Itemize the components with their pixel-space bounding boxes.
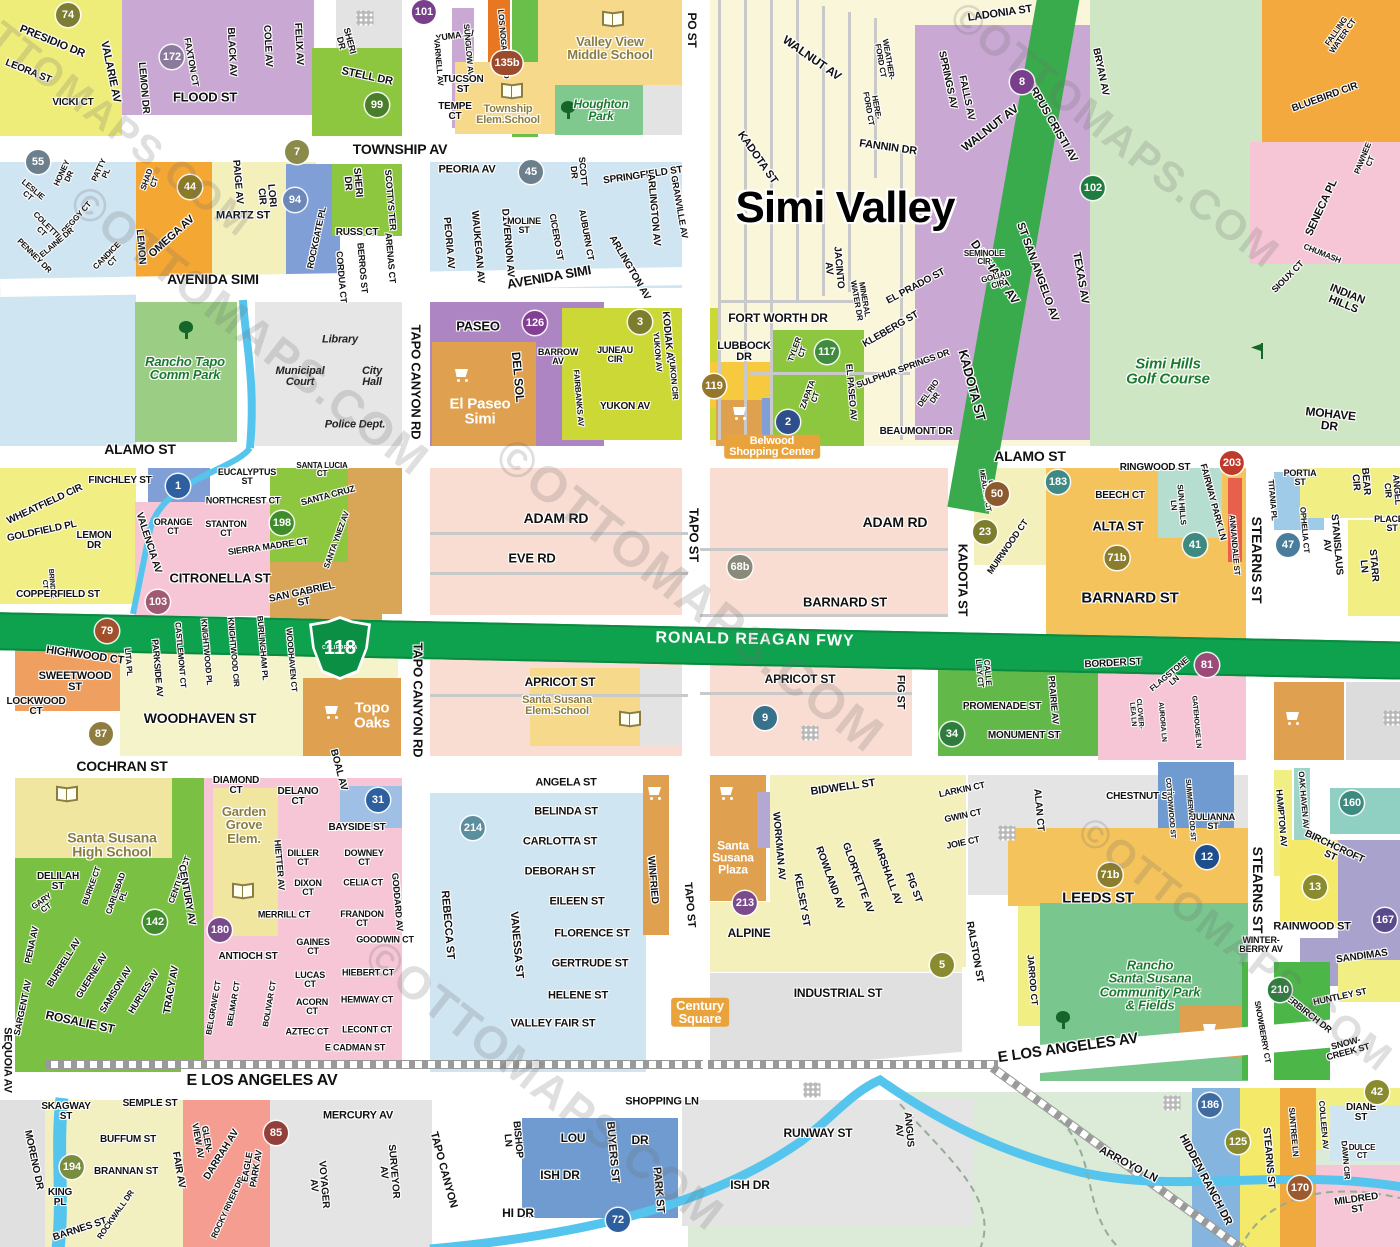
railroad-track	[708, 1060, 998, 1069]
poi-label: El Paseo Simi	[450, 397, 511, 428]
street-label: COLE AV	[261, 25, 273, 67]
street-label: SURVEYOR AV	[375, 1144, 400, 1200]
street-label: MOLINE ST	[507, 217, 541, 235]
street-label: BRANNAN ST	[94, 1167, 158, 1177]
street-label: GERTRUDE ST	[552, 958, 629, 969]
street-label: SHOPPING LN	[625, 1096, 699, 1107]
street-label: LECONT CT	[342, 1025, 392, 1034]
map-badge-47: 47	[1276, 533, 1300, 557]
street-label: ISH DR	[730, 1179, 769, 1191]
road-segment	[718, 300, 858, 303]
map-canvas[interactable]: RONALD REAGAN FWY CALIFORNIA 118 Simi Va…	[0, 0, 1400, 1247]
street-label: RALSTON ST	[964, 921, 985, 984]
street-label: STEARNS ST	[1251, 847, 1265, 934]
street-label: ORANGE CT	[154, 518, 192, 536]
street-label: GAINES CT	[296, 938, 329, 956]
street-label: CALLE LILY CT	[974, 658, 993, 687]
map-badge-1: 1	[166, 474, 190, 498]
street-label: MERCURY AV	[323, 1110, 393, 1121]
map-badge-135b: 135b	[491, 51, 522, 75]
map-badge-74: 74	[56, 3, 80, 27]
district-block	[700, 465, 948, 615]
street-label: BELINDA ST	[534, 806, 598, 817]
street-label: RUNWAY ST	[784, 1127, 853, 1139]
street-label: LITA PL	[123, 648, 134, 677]
map-badge-68b: 68b	[728, 555, 753, 579]
poi-label: Library	[322, 334, 358, 345]
street-label: ANGELA ST	[535, 777, 596, 788]
street-label: BLACK AV	[225, 27, 238, 76]
street-label: TEMPE CT	[438, 102, 471, 122]
street-label: INDUSTRIAL ST	[794, 987, 883, 999]
street-label: DOWNEY CT	[344, 849, 383, 867]
street-label: MERRILL CT	[258, 910, 310, 919]
city-title: Simi Valley	[736, 183, 955, 233]
poi-label: Simi Hills Golf Course	[1126, 357, 1210, 388]
street-label: STARR LN	[1356, 549, 1379, 583]
street-label: DIXON CT	[294, 879, 322, 897]
street-label: COCHRAN ST	[76, 759, 167, 773]
street-label: CITRONELLA ST	[170, 571, 271, 584]
street-label: SANTA LUCIA CT	[296, 462, 347, 478]
street-label: BARNARD ST	[1081, 590, 1178, 605]
street-label: VALLEY FAIR ST	[511, 1018, 596, 1029]
street-label: FELIX AV	[292, 23, 304, 66]
map-badge-71b: 71b	[1105, 546, 1130, 570]
street-label: WOODHAVEN ST	[144, 711, 256, 725]
street-label: TUCSON ST	[442, 75, 483, 95]
street-label: LEEDS ST	[1062, 890, 1134, 905]
street-label: HELENE ST	[548, 990, 608, 1001]
poi-label: Houghton Park	[573, 98, 628, 122]
map-badge-50: 50	[985, 482, 1009, 506]
road-segment	[700, 548, 948, 551]
street-label: FLOOD ST	[173, 90, 237, 103]
book-icon	[56, 787, 78, 800]
map-badge-41: 41	[1183, 533, 1207, 557]
street-label: CLOVER- LEA LN	[1128, 698, 1145, 729]
street-label: DIANE ST	[1342, 1103, 1381, 1123]
poi-label: Century Square	[671, 998, 729, 1027]
map-badge-94: 94	[283, 188, 307, 212]
street-label: CHESTNUT ST	[1106, 792, 1174, 802]
map-badge-55: 55	[26, 150, 50, 174]
railroad-track	[45, 1060, 703, 1069]
street-label: EILEEN ST	[549, 896, 604, 907]
street-label: BEAUMONT DR	[880, 427, 953, 437]
street-label: LUCAS CT	[295, 971, 325, 989]
street-label: EUCALYPTUS ST	[218, 468, 276, 486]
street-label: SEMPLE ST	[123, 1099, 178, 1109]
street-label: SUN HILLS LN	[1167, 484, 1187, 526]
poi-label: Topo Oaks	[354, 701, 390, 732]
street-label: DELILAH ST	[37, 872, 79, 892]
road-segment	[402, 0, 430, 1085]
poi-label: Belwood Shopping Center	[724, 435, 820, 459]
street-label: FRANDON CT	[340, 910, 384, 928]
map-badge-99: 99	[365, 93, 389, 117]
street-label: E LOS ANGELES AV	[187, 1073, 338, 1089]
map-badge-3: 3	[628, 310, 652, 334]
map-badge-31: 31	[366, 788, 390, 812]
poi-label: Township Elem.School	[476, 104, 540, 126]
street-label: EVE RD	[508, 551, 555, 564]
cart-icon	[691, 967, 709, 983]
poi-label: Valley View Middle School	[567, 35, 653, 62]
street-label: DULCE CT	[1349, 1144, 1376, 1160]
cart-icon	[646, 785, 664, 801]
street-label: ANGEL CIR	[1382, 474, 1400, 506]
map-badge-34: 34	[940, 722, 964, 746]
district-block	[640, 668, 688, 746]
street-label: ALAMO ST	[104, 442, 176, 456]
street-label: E CADMAN ST	[325, 1043, 385, 1052]
street-label: ALTA ST	[1092, 519, 1143, 532]
building-icon	[1164, 1096, 1181, 1111]
street-label: CARLOTTA ST	[523, 836, 597, 847]
street-label: ANTIOCH ST	[218, 952, 277, 962]
street-label: RUSS CT	[336, 228, 379, 238]
street-label: SKAGWAY ST	[41, 1102, 90, 1122]
cart-icon	[731, 405, 749, 421]
street-label: CELIA CT	[343, 878, 383, 887]
golf-icon	[1250, 343, 1266, 361]
cart-icon	[453, 367, 471, 383]
street-label: TOWNSHIP AV	[353, 142, 448, 156]
street-label: FLORENCE ST	[554, 928, 629, 939]
building-icon	[804, 1083, 821, 1098]
poi-label: Santa Susana High School	[67, 831, 156, 860]
street-label: STANTON CT	[205, 520, 246, 538]
street-label: PO ST	[686, 12, 698, 47]
street-label: STANISLAUS AV	[1318, 510, 1344, 581]
poi-label: Garden Grove Elem.	[222, 805, 266, 845]
district-block	[1330, 788, 1400, 834]
street-label: BARROW AV	[538, 348, 578, 366]
street-label: SEMINOLE CIR	[964, 250, 1004, 266]
tree-icon	[178, 321, 194, 339]
street-label: ACORN CT	[296, 998, 328, 1016]
street-label: PLACER ST	[1374, 515, 1400, 533]
street-label: DELANO CT	[277, 787, 318, 807]
building-icon	[1384, 711, 1400, 726]
street-label: LUBBOCK DR	[717, 341, 771, 363]
street-label: LOCKWOOD CT	[7, 697, 66, 717]
street-label: HI DR	[502, 1207, 534, 1219]
street-label: FORT WORTH DR	[728, 312, 827, 324]
street-label: PASEO	[456, 319, 500, 332]
map-badge-23: 23	[973, 520, 997, 544]
district-block	[1280, 1088, 1316, 1247]
poi-label: Rancho Santa Susana Community Park & Fie…	[1100, 959, 1201, 1012]
street-label: ADAM RD	[863, 515, 928, 529]
street-label: BEECH CT	[1095, 491, 1145, 501]
cart-icon	[1201, 1022, 1219, 1038]
map-badge-79: 79	[95, 619, 119, 643]
street-label: PROMENADE ST	[963, 702, 1041, 712]
street-label: SEQUOIA AV	[1, 1027, 12, 1092]
street-label: YUKON AV	[600, 402, 650, 412]
street-label: FINCHLEY ST	[88, 476, 151, 486]
street-label: RINGWOOD ST	[1120, 463, 1191, 473]
book-icon	[602, 12, 624, 25]
street-label: RAINWOOD ST	[1273, 921, 1350, 932]
map-badge-85: 85	[264, 1121, 288, 1145]
street-label: APRICOT ST	[525, 676, 596, 688]
road-segment	[848, 12, 851, 292]
highway-118-shield-face: CALIFORNIA 118	[312, 619, 368, 677]
building-icon	[357, 11, 374, 26]
map-badge-119: 119	[702, 374, 726, 398]
poi-label: Santa Susana Plaza	[712, 840, 754, 877]
map-badge-5: 5	[930, 953, 954, 977]
street-label: SWEETWOOD ST	[39, 671, 112, 693]
street-label: BAYSIDE ST	[328, 823, 385, 833]
street-label: DEBORAH ST	[525, 866, 596, 877]
street-label: COPPERFIELD ST	[16, 590, 100, 600]
building-icon	[999, 826, 1016, 841]
street-label: PEORIA AV	[438, 164, 495, 175]
cart-icon	[323, 704, 341, 720]
map-badge-117: 117	[815, 340, 839, 364]
cart-icon	[718, 785, 736, 801]
street-label: KADOTA ST	[956, 544, 969, 617]
shield-number: 118	[324, 638, 356, 658]
street-label: DIAMOND CT	[213, 776, 259, 796]
map-badge-45: 45	[519, 160, 543, 184]
street-label: MONUMENT ST	[988, 731, 1060, 741]
tree-icon	[1055, 1011, 1071, 1029]
street-label: SHERI DR	[341, 167, 364, 198]
street-label: ALPINE	[728, 927, 771, 939]
cart-icon	[1284, 710, 1302, 726]
map-badge-81: 81	[1195, 653, 1219, 677]
street-label: JULIANNA ST	[1191, 813, 1235, 831]
street-label: ISH DR	[540, 1169, 579, 1181]
map-badge-87: 87	[89, 722, 113, 746]
street-label: KING PL	[48, 1188, 72, 1208]
map-badge-7: 7	[285, 140, 309, 164]
street-label: BUFFUM ST	[100, 1135, 156, 1145]
street-label: LORI CIR	[255, 184, 277, 209]
street-label: JUNEAU CIR	[597, 346, 633, 364]
street-label: DILLER CT	[287, 849, 318, 867]
book-icon	[232, 884, 254, 897]
street-label: JACINTO AV	[821, 246, 845, 290]
street-label: ALAMO ST	[994, 449, 1066, 463]
street-label: NORTHCREST CT	[206, 496, 280, 505]
street-label: SCOTT DR	[568, 157, 589, 188]
street-label: HEMWAY CT	[341, 995, 393, 1004]
street-label: PORTIA ST	[1284, 469, 1317, 487]
map-badge-101: 101	[412, 0, 436, 24]
street-label: ANGUS AV	[891, 1112, 914, 1149]
street-label: AZTEC CT	[286, 1027, 329, 1036]
map-badge-12: 12	[1195, 845, 1219, 869]
street-label: BEAR CIR	[1348, 461, 1372, 503]
street-label: CORDUA CT	[334, 251, 348, 303]
street-label: BARNARD ST	[803, 595, 887, 608]
map-badge-2: 2	[776, 410, 800, 434]
district-block	[1262, 682, 1344, 760]
street-label: BISHOP LN	[500, 1121, 524, 1160]
street-label: VOYAGER AV	[306, 1160, 330, 1209]
book-icon	[619, 712, 641, 725]
map-badge-9: 9	[753, 706, 777, 730]
street-label: FIG ST	[894, 675, 905, 709]
street-label: TAPO ST	[687, 508, 700, 562]
poi-label: Rancho Tapo Comm Park	[145, 355, 225, 382]
district-block	[1262, 0, 1400, 142]
book-icon	[501, 84, 523, 97]
poi-label: Santa Susana Elem.School	[522, 695, 592, 717]
map-badge-42: 42	[1365, 1080, 1389, 1104]
street-label: LEMON DR	[76, 531, 111, 551]
map-badge-72: 72	[606, 1208, 630, 1232]
street-label: STEARNS ST	[1250, 517, 1264, 604]
map-badge-13: 13	[1303, 875, 1327, 899]
street-label: TAPO CANYON RD	[411, 643, 424, 758]
